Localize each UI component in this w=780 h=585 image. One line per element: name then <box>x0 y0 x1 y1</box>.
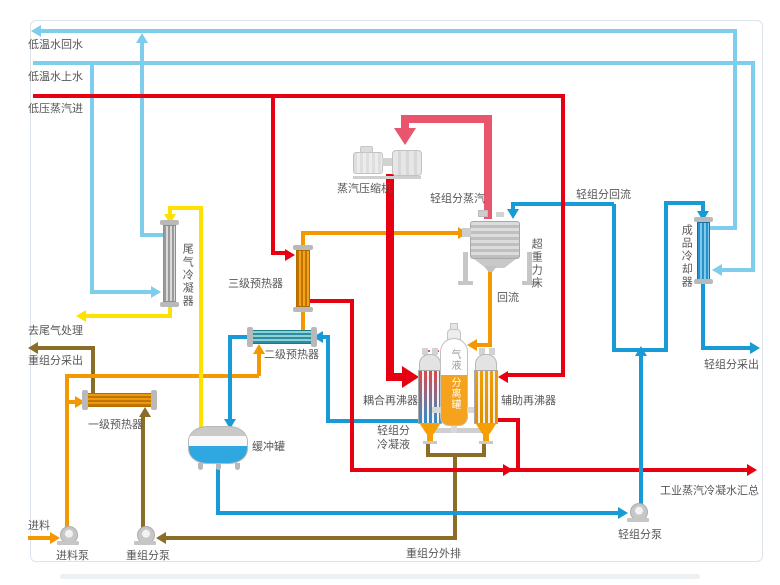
label-industrial-steam-condensate: 工业蒸汽冷凝水汇总 <box>660 484 759 498</box>
label-light-component-vapor: 轻组分蒸汽 <box>430 192 485 206</box>
label-product-cooler: 成品冷却器 <box>679 224 693 289</box>
label-light-component-condensate: 轻组分 冷凝液 <box>377 424 410 453</box>
label-light-component-drawoff: 轻组分采出 <box>704 358 759 372</box>
label-light-component-condensate-line2: 冷凝液 <box>377 438 410 452</box>
label-light-component-condensate-line1: 轻组分 <box>377 424 410 438</box>
label-coupled-reboiler: 耦合再沸器 <box>363 394 418 408</box>
label-to-tail-gas-treatment: 去尾气处理 <box>28 324 83 338</box>
label-steam-compressor: 蒸汽压缩机 <box>337 182 392 196</box>
label-feed: 进料 <box>28 519 50 533</box>
label-reflux: 回流 <box>497 291 519 305</box>
light-pump-base <box>627 518 649 522</box>
label-feed-pump: 进料泵 <box>56 549 89 563</box>
label-cold-water-supply: 低温水上水 <box>28 70 83 84</box>
label-separator-top: 气液 <box>448 349 461 371</box>
label-heavy-component-drawoff: 重组分采出 <box>28 354 83 368</box>
process-flow-diagram: AG 亚光股份 YAGUANG TECH <box>0 0 780 585</box>
label-auxiliary-reboiler: 辅助再沸器 <box>501 394 556 408</box>
heavy-pump-base <box>134 541 156 545</box>
feed-pump-base <box>57 541 79 545</box>
label-higee-bed: 超重力床 <box>529 238 543 290</box>
label-preheater-2: 二级预热器 <box>264 348 319 362</box>
label-cold-water-return: 低温水回水 <box>28 38 83 52</box>
label-tail-gas-condenser: 尾气冷凝器 <box>180 243 194 308</box>
label-preheater-1: 一级预热器 <box>88 418 143 432</box>
bottom-divider <box>60 574 700 579</box>
label-buffer-tank: 缓冲罐 <box>252 440 285 454</box>
label-light-component-reflux: 轻组分回流 <box>576 188 631 202</box>
label-heavy-component-pump: 重组分泵 <box>126 549 170 563</box>
label-separator-bottom: 分离罐 <box>448 377 461 410</box>
vessel-bottom-connector <box>428 428 488 433</box>
label-preheater-3: 三级预热器 <box>228 277 283 291</box>
label-light-component-pump: 轻组分泵 <box>618 528 662 542</box>
label-lp-steam-in: 低压蒸汽进 <box>28 102 83 116</box>
label-heavy-component-discharge: 重组分外排 <box>406 547 461 561</box>
